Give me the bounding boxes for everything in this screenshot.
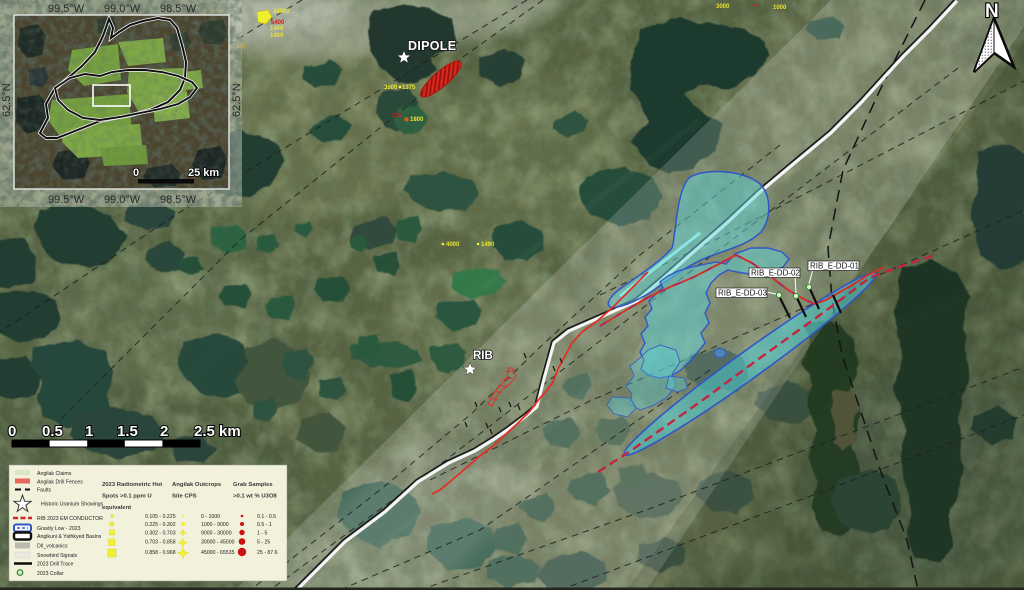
svg-text:1400: 1400: [270, 26, 284, 32]
svg-text:0: 0: [8, 423, 16, 440]
svg-text:2: 2: [160, 423, 168, 440]
svg-text:2023 Radiometric Hot: 2023 Radiometric Hot: [102, 482, 162, 488]
svg-text:3000: 3000: [716, 4, 730, 10]
svg-text:Angikuni & Yathkyed Basins: Angikuni & Yathkyed Basins: [37, 534, 102, 540]
svg-text:RIB_E-DD-02: RIB_E-DD-02: [751, 269, 800, 278]
svg-text:0: 0: [133, 167, 139, 179]
svg-text:0 - 1000: 0 - 1000: [201, 514, 220, 520]
svg-text:99.5°W: 99.5°W: [48, 3, 85, 15]
svg-text:1375: 1375: [402, 85, 416, 91]
svg-text:25 - 87.6: 25 - 87.6: [257, 550, 278, 556]
svg-text:Gravity Low - 2023: Gravity Low - 2023: [37, 526, 81, 532]
svg-text:5 - 25: 5 - 25: [257, 540, 270, 546]
svg-text:>0.1 wt % U3O8: >0.1 wt % U3O8: [233, 494, 277, 500]
svg-text:1.5: 1.5: [117, 423, 138, 440]
svg-text:Historic Uranium Showings: Historic Uranium Showings: [41, 502, 104, 508]
svg-text:++: ++: [752, 3, 758, 9]
svg-text:Faults: Faults: [37, 488, 52, 494]
svg-text:99.5°W: 99.5°W: [48, 194, 85, 206]
svg-text:Angilak Outcrops: Angilak Outcrops: [172, 482, 222, 488]
svg-text:0.302 - 0.703: 0.302 - 0.703: [145, 531, 176, 537]
svg-text:RIB_E-DD-03: RIB_E-DD-03: [718, 289, 767, 298]
svg-text:4000: 4000: [446, 242, 460, 248]
svg-text:2023 Drill Trace: 2023 Drill Trace: [37, 562, 73, 568]
svg-text:Angilak Claims: Angilak Claims: [37, 471, 72, 477]
svg-text:62.5°N: 62.5°N: [231, 83, 242, 117]
svg-text:1000 - 9000: 1000 - 9000: [201, 522, 229, 528]
svg-text:1490: 1490: [481, 242, 495, 248]
svg-text:34000: 34000: [273, 9, 290, 15]
svg-text:1480: 1480: [270, 33, 284, 39]
svg-text:Grab Samples: Grab Samples: [233, 482, 273, 488]
svg-text:99.0°W: 99.0°W: [104, 194, 141, 206]
svg-text:225: 225: [392, 113, 401, 119]
svg-text:Angilak Drill Fences: Angilak Drill Fences: [37, 480, 83, 486]
svg-text:0.1 - 0.5: 0.1 - 0.5: [257, 514, 276, 520]
svg-text:N: N: [985, 1, 999, 22]
svg-text:DIPOLE: DIPOLE: [408, 39, 456, 53]
svg-text:1 - 5: 1 - 5: [257, 531, 267, 537]
svg-text:0.858 - 0.968: 0.858 - 0.968: [145, 550, 176, 556]
svg-text:equivalent: equivalent: [102, 505, 131, 511]
svg-text:0.5: 0.5: [42, 423, 63, 440]
svg-text:25 km: 25 km: [188, 167, 219, 179]
svg-text:62.5°N: 62.5°N: [1, 83, 13, 117]
svg-text:30000 - 45000: 30000 - 45000: [201, 540, 235, 546]
svg-text:45000 - 65535: 45000 - 65535: [201, 550, 235, 556]
svg-text:99.0°W: 99.0°W: [104, 3, 141, 15]
svg-text:9000 - 30000: 9000 - 30000: [201, 531, 232, 537]
svg-text:DIl_volcanics: DIl_volcanics: [37, 544, 68, 550]
svg-text:1800: 1800: [410, 117, 424, 123]
svg-text:0.105 - 0.225: 0.105 - 0.225: [145, 514, 176, 520]
svg-text:0.703 - 0.858: 0.703 - 0.858: [145, 540, 176, 546]
svg-text:98.5°W: 98.5°W: [160, 194, 197, 206]
svg-text:2023 Collar: 2023 Collar: [37, 571, 64, 577]
svg-text:RIB 2023 EM CONDUCTOR: RIB 2023 EM CONDUCTOR: [37, 516, 103, 522]
svg-text:RIB_E-DD-01: RIB_E-DD-01: [810, 262, 859, 271]
svg-text:0.225 - 0.302: 0.225 - 0.302: [145, 522, 176, 528]
svg-text:Spots >0.1 ppm U: Spots >0.1 ppm U: [102, 494, 152, 500]
svg-text:0.5 - 1: 0.5 - 1: [257, 522, 272, 528]
svg-text:Site CPS: Site CPS: [172, 494, 197, 500]
svg-text:3500: 3500: [384, 85, 398, 91]
svg-text:RIB: RIB: [473, 350, 493, 362]
svg-text:2.5 km: 2.5 km: [194, 423, 241, 440]
svg-text:1: 1: [85, 423, 93, 440]
svg-text:98.5°W: 98.5°W: [160, 3, 197, 15]
svg-text:Snowbird Signals: Snowbird Signals: [37, 553, 77, 559]
svg-text:1000: 1000: [773, 5, 787, 11]
